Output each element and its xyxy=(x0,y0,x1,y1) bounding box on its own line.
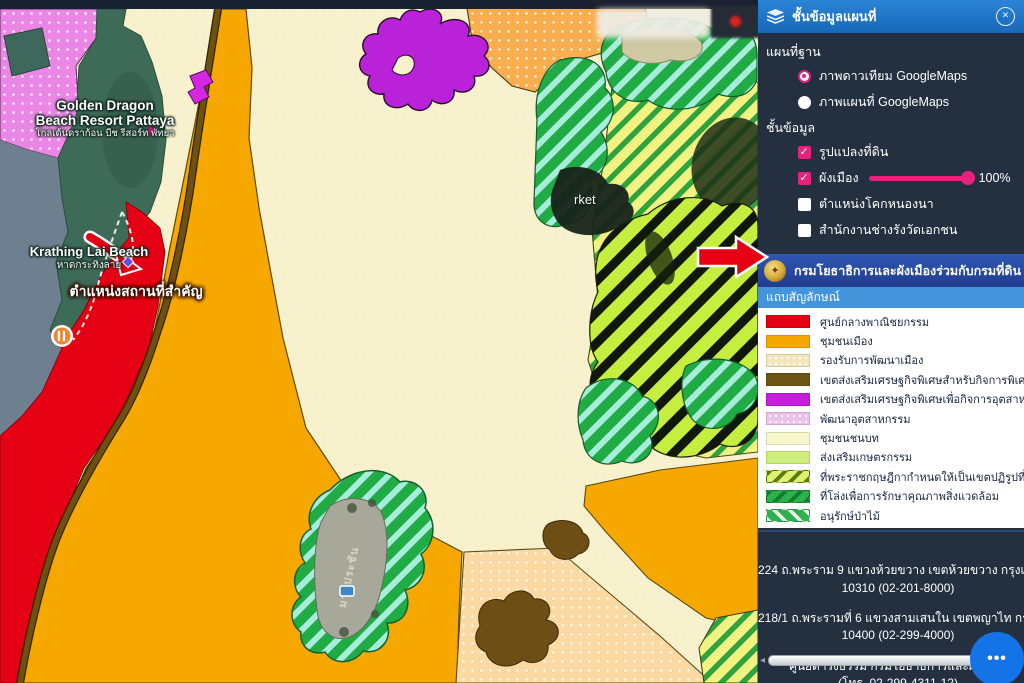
checkbox-private-surveyor-label: สำนักงานช่างรังวัดเอกชน xyxy=(819,220,957,240)
beach-label-en: Krathing Lai Beach xyxy=(14,245,164,260)
radio-icon-unselected[interactable] xyxy=(798,96,811,109)
legend-swatch xyxy=(766,373,810,386)
legend-swatch xyxy=(766,432,810,445)
resort-label-thai: โกลเด้นดราก้อน บีช รีสอร์ท พัทยา xyxy=(10,129,200,140)
legend-item: รองรับการพัฒนาเมือง xyxy=(758,351,1024,370)
checkbox-land-parcels[interactable]: รูปแปลงที่ดิน xyxy=(798,142,1016,162)
legend-swatch xyxy=(766,412,810,425)
legend-swatch xyxy=(766,354,810,367)
legend-item: ชุมชนชนบท xyxy=(758,428,1024,447)
radio-map-googlemaps[interactable]: ภาพแผนที่ GoogleMaps xyxy=(798,92,1016,112)
scroll-left-icon[interactable]: ◂ xyxy=(760,655,765,666)
close-icon[interactable]: ✕ xyxy=(996,7,1015,26)
checkbox-unchecked-icon[interactable] xyxy=(798,224,811,237)
resort-map-label: Golden Dragon Beach Resort Pattaya โกลเด… xyxy=(10,98,200,140)
beach-map-label: Krathing Lai Beach หาดกระทิงลาย xyxy=(14,245,164,271)
beach-label-thai: หาดกระทิงลาย xyxy=(14,260,164,271)
contact-phone-1: 10310 (02-201-8000) xyxy=(758,580,1024,597)
record-dot-icon xyxy=(730,16,741,27)
panel-title: ชั้นข้อมูลแผนที่ xyxy=(792,6,996,27)
lake-sign-icon xyxy=(340,586,354,596)
radio-satellite-googlemaps[interactable]: ภาพดาวเทียม GoogleMaps xyxy=(798,66,1016,86)
layers-icon xyxy=(767,9,784,24)
checkbox-land-parcels-label: รูปแปลงที่ดิน xyxy=(819,142,888,162)
agency-banner-text: กรมโยธาธิการและผังเมืองร่วมกับกรมที่ดิน xyxy=(794,261,1021,281)
panel-body: แผนที่ฐาน ภาพดาวเทียม GoogleMaps ภาพแผนท… xyxy=(758,33,1024,250)
legend-item: ชุมชนเมือง xyxy=(758,331,1024,350)
radio-icon-selected[interactable] xyxy=(798,70,811,83)
opacity-value: 100% xyxy=(979,171,1011,185)
contact-address-2: 218/1 ถ.พระรามที่ 6 แขวงสามเสนใน เขตพญาไ… xyxy=(758,610,1024,627)
legend-list: ศูนย์กลางพาณิชยกรรม ชุมชนเมือง รองรับการ… xyxy=(758,308,1024,528)
legend-swatch xyxy=(766,393,810,406)
restaurant-poi-icon[interactable] xyxy=(51,325,73,347)
checkbox-unchecked-icon[interactable] xyxy=(798,198,811,211)
opacity-slider[interactable] xyxy=(869,176,969,181)
resort-label-line2: Beach Resort Pattaya xyxy=(10,113,200,128)
layer-panel: ชั้นข้อมูลแผนที่ ✕ แผนที่ฐาน ภาพดาวเทียม… xyxy=(758,0,1024,683)
checkbox-checked-icon[interactable] xyxy=(798,172,811,185)
checkbox-city-plan-label: ผังเมือง xyxy=(819,168,859,188)
checkbox-khok-nong-na-label: ตำแหน่งโคกหนองนา xyxy=(819,194,934,214)
panel-header: ชั้นข้อมูลแผนที่ ✕ xyxy=(758,0,1024,33)
radio-satellite-label: ภาพดาวเทียม GoogleMaps xyxy=(819,66,967,86)
legend-pointer-arrow xyxy=(696,234,770,280)
legend-item: พัฒนาอุตสาหกรรม xyxy=(758,409,1024,428)
legend-swatch xyxy=(766,509,810,522)
legend-swatch xyxy=(766,451,810,464)
radio-map-label: ภาพแผนที่ GoogleMaps xyxy=(819,92,949,112)
important-place-label: ตำแหน่งสถานที่สำคัญ xyxy=(36,284,236,300)
checkbox-city-plan[interactable]: ผังเมือง 100% xyxy=(798,168,1016,188)
contact-address-1: 224 ถ.พระราม 9 แขวงห้วยขวาง เขตห้วยขวาง … xyxy=(758,562,1024,579)
map-canvas[interactable]: มาบประชัน Golden Dragon Beach Resort Pat… xyxy=(0,0,758,683)
legend-title-bar: แถบสัญลักษณ์ xyxy=(758,287,1024,308)
slider-knob[interactable] xyxy=(961,171,975,185)
legend-item: ส่งเสริมเกษตรกรรม xyxy=(758,448,1024,467)
legend-item: ที่โล่งเพื่อการรักษาคุณภาพสิ่งแวดล้อม xyxy=(758,487,1024,506)
market-partial-label: rket xyxy=(574,193,634,208)
legend-swatch xyxy=(766,335,810,348)
more-options-button[interactable]: ••• xyxy=(970,632,1024,683)
resort-label-line1: Golden Dragon xyxy=(10,98,200,113)
legend-item: เขตส่งเสริมเศรษฐกิจพิเศษเพื่อกิจการอุตสา… xyxy=(758,390,1024,409)
agency-banner: ✦ กรมโยธาธิการและผังเมืองร่วมกับกรมที่ดิ… xyxy=(758,254,1024,287)
layers-section-label: ชั้นข้อมูล xyxy=(766,118,1016,138)
legend-swatch xyxy=(766,470,810,483)
legend-item: ที่พระราชกฤษฎีกากำหนดให้เป็นเขตปฏิรูปที่… xyxy=(758,467,1024,486)
recording-indicator xyxy=(711,5,758,38)
checkbox-private-surveyor[interactable]: สำนักงานช่างรังวัดเอกชน xyxy=(798,220,1016,240)
legend-swatch xyxy=(766,315,810,328)
base-map-section-label: แผนที่ฐาน xyxy=(766,42,1016,62)
legend-item: อนุรักษ์ป่าไม้ xyxy=(758,506,1024,525)
legend-item: เขตส่งเสริมเศรษฐกิจพิเศษสำหรับกิจการพิเศ… xyxy=(758,370,1024,389)
legend-item: ศูนย์กลางพาณิชยกรรม xyxy=(758,312,1024,331)
legend-swatch xyxy=(766,490,810,503)
checkbox-checked-icon[interactable] xyxy=(798,146,811,159)
blurred-place-label xyxy=(597,9,710,38)
checkbox-khok-nong-na[interactable]: ตำแหน่งโคกหนองนา xyxy=(798,194,1016,214)
